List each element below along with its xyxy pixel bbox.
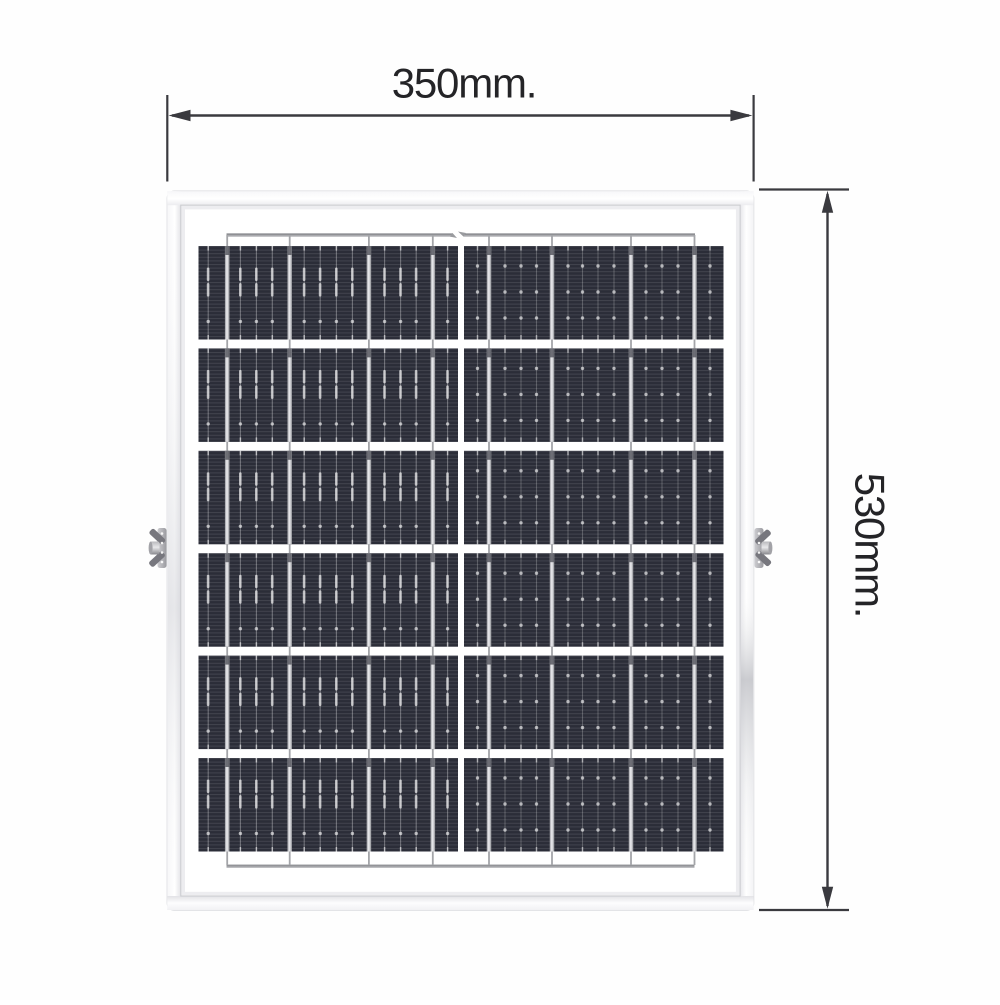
svg-text:530mm.: 530mm. [847,473,894,618]
svg-text:350mm.: 350mm. [392,60,537,107]
